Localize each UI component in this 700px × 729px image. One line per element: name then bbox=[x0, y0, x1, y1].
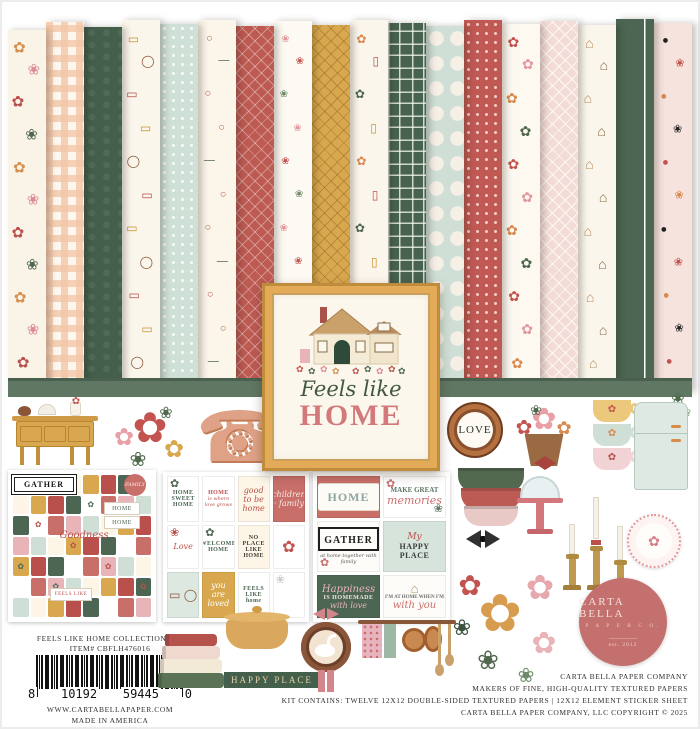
goodness-sticker: Goodness bbox=[56, 528, 112, 542]
paper-motif-icon: ● bbox=[661, 91, 668, 102]
paper-strip: ✿✿✿✿✿✿✿✿✿✿✿ bbox=[502, 24, 540, 392]
paper-motif-icon: ▭ bbox=[126, 222, 137, 234]
book-stack bbox=[156, 634, 226, 688]
paper-motif-icon: ❀ bbox=[281, 35, 289, 45]
paper-motif-icon: ❀ bbox=[673, 125, 682, 136]
paper-motif-icon: ✿ bbox=[13, 41, 26, 56]
journaling-card: ✿ bbox=[273, 525, 305, 568]
logo-subtitle: P A P E R C O. bbox=[585, 623, 660, 629]
paper-motif-icon: ❀ bbox=[674, 191, 683, 202]
paper-motif-icon: ✿ bbox=[521, 190, 533, 204]
journaling-card: ❀Love bbox=[167, 525, 199, 568]
book-icon bbox=[158, 673, 224, 688]
copyright-line: CARTA BELLA PAPER COMPANY, LLC COPYRIGHT… bbox=[461, 708, 688, 717]
gather-sticker: GATHER bbox=[14, 477, 74, 492]
paper-motif-icon: ❀ bbox=[675, 58, 684, 69]
svg-text:✿: ✿ bbox=[364, 365, 372, 375]
paper-motif-icon: ▯ bbox=[370, 122, 377, 134]
paper-motif-icon: ❀ bbox=[295, 190, 303, 200]
red-bow-icon bbox=[534, 456, 556, 470]
paper-motif-icon: ✿ bbox=[14, 290, 27, 305]
paper-motif-icon: ✿ bbox=[356, 155, 366, 167]
paper-motif-icon: ❀ bbox=[293, 124, 301, 134]
sticker-tile bbox=[13, 598, 29, 617]
journaling-cards-sheet-small: ✿HOME SWEET HOMEHOMEis where love growsg… bbox=[163, 472, 309, 622]
paper-strip bbox=[160, 24, 198, 392]
paper-strip bbox=[84, 27, 122, 392]
journaling-card: ▭ ◯ bbox=[167, 572, 199, 618]
paper-motif-icon: ▭ bbox=[128, 289, 139, 301]
swan-medallion bbox=[300, 608, 352, 692]
paper-motif-icon: ○ bbox=[218, 122, 225, 133]
sticker-tile bbox=[48, 598, 64, 617]
paper-motif-icon: ▭ bbox=[141, 323, 152, 335]
sticker-tile bbox=[31, 496, 47, 515]
paper-motif-icon: ❀ bbox=[296, 57, 304, 67]
black-bow bbox=[466, 530, 500, 548]
cottage-illustration: ✿✿ ✿✿ ✿✿ ✿✿ ✿ bbox=[290, 301, 412, 375]
book-icon bbox=[162, 646, 220, 659]
paper-motif-icon: ❀ bbox=[26, 258, 39, 273]
paper-motif-icon: ❀ bbox=[280, 90, 288, 100]
paper-motif-icon: ✿ bbox=[508, 157, 520, 171]
paper-strip: ●❀●❀●❀●❀●❀● bbox=[654, 23, 692, 392]
paper-motif-icon: ✿ bbox=[356, 33, 366, 45]
paper-motif-icon: ❀ bbox=[25, 127, 38, 142]
teacup-icon: ✿ bbox=[593, 400, 631, 422]
sticker-tile bbox=[136, 537, 152, 556]
paper-motif-icon: ○ bbox=[220, 323, 227, 334]
paper-motif-icon: ◯ bbox=[141, 55, 154, 67]
paper-motif-icon: ❀ bbox=[294, 257, 302, 267]
paper-motif-icon: ❀ bbox=[28, 62, 41, 77]
sticker-tile: ✿ bbox=[13, 557, 29, 576]
dutch-oven-pot bbox=[222, 612, 292, 649]
paper-motif-icon: ⌂ bbox=[584, 91, 592, 105]
paper-motif-icon: ⌂ bbox=[584, 224, 592, 238]
leaf-icon: ❀ bbox=[530, 403, 542, 417]
leaf-icon: ❀ bbox=[477, 647, 499, 673]
item-number: ITEM# CBFLH476016 bbox=[70, 644, 151, 653]
rose-icon: ✿ bbox=[114, 426, 134, 450]
sticker-tile: ✿ bbox=[83, 598, 99, 617]
paper-motif-icon: ✿ bbox=[12, 95, 25, 110]
paper-motif-icon: ▭ bbox=[141, 189, 152, 201]
sticker-tile bbox=[31, 537, 47, 556]
journaling-card: GATHER at home together with family ✿ bbox=[317, 521, 380, 573]
svg-text:✿: ✿ bbox=[398, 367, 406, 375]
sticker-tile bbox=[48, 496, 64, 515]
journaling-card: good to be home bbox=[238, 476, 270, 522]
paper-motif-icon: ◯ bbox=[127, 155, 140, 167]
logo-est: est. 2012 bbox=[609, 638, 638, 648]
paper-motif-icon: ✿ bbox=[355, 88, 365, 100]
feels-like-home-frame: ✿✿ ✿✿ ✿✿ ✿✿ ✿ Feels like HOME bbox=[262, 283, 440, 471]
rose-icon: ✿ bbox=[526, 571, 555, 605]
large-rose-bouquet: ✿ ✿ ✿ ✿ ❀ ❀ ❀ bbox=[448, 552, 574, 698]
bowl-icon bbox=[464, 506, 518, 526]
rose-icon: ✿ bbox=[648, 534, 660, 548]
paper-motif-icon: ✿ bbox=[520, 256, 532, 270]
feels-like-sticker: FEELS LIKE bbox=[50, 588, 92, 601]
pot-lid-icon bbox=[224, 612, 290, 622]
sticker-tile: ✿ bbox=[101, 557, 117, 576]
home-sticker: HOME bbox=[104, 502, 140, 515]
wooden-spoon-icon bbox=[448, 624, 451, 658]
paper-motif-icon: ✿ bbox=[506, 91, 518, 105]
journaling-card: children · family bbox=[273, 476, 305, 522]
website: WWW.CARTABELLAPAPER.COM bbox=[47, 705, 173, 714]
wooden-spoon-icon bbox=[438, 624, 441, 668]
paper-motif-icon: ❀ bbox=[674, 324, 683, 335]
paper-motif-icon: ▯ bbox=[372, 189, 379, 201]
paper-motif-icon: — bbox=[204, 156, 215, 167]
cake-dome-icon bbox=[38, 404, 56, 415]
svg-text:✿: ✿ bbox=[388, 365, 396, 375]
paper-strip bbox=[46, 22, 84, 392]
paper-motif-icon: ◯ bbox=[140, 256, 153, 268]
paper-motif-icon: ▭ bbox=[128, 33, 139, 45]
frame-script-text: Feels like bbox=[300, 377, 401, 401]
svg-text:✿: ✿ bbox=[376, 367, 384, 375]
small-card-grid: ✿HOME SWEET HOMEHOMEis where love growsg… bbox=[167, 476, 305, 618]
paper-motif-icon: — bbox=[218, 55, 229, 66]
book-icon bbox=[160, 659, 222, 673]
paper-motif-icon: ❀ bbox=[674, 257, 683, 268]
candlestick-icon bbox=[587, 497, 605, 590]
sticker-tile bbox=[66, 598, 82, 617]
paper-motif-icon: ⌂ bbox=[597, 124, 605, 138]
paper-motif-icon: — bbox=[217, 256, 228, 267]
sticker-tile bbox=[136, 598, 152, 617]
paper-motif-icon: — bbox=[208, 357, 219, 368]
paper-motif-icon: ⌂ bbox=[598, 257, 606, 271]
sticker-tile bbox=[31, 598, 47, 617]
svg-text:✿: ✿ bbox=[320, 365, 328, 375]
cake-stand bbox=[517, 476, 563, 534]
sticker-tile: ✿ bbox=[31, 516, 47, 535]
hanging-pan-rack bbox=[358, 612, 456, 702]
journaling-card: HOME bbox=[317, 476, 380, 518]
bowl-icon: ✿ bbox=[627, 514, 681, 568]
retro-refrigerator: ❀ ❀ bbox=[634, 392, 690, 500]
paper-motif-icon: ○ bbox=[220, 189, 227, 200]
paper-motif-icon: ❀ bbox=[27, 323, 40, 338]
paper-motif-icon: ⌂ bbox=[600, 58, 608, 72]
sticker-tile bbox=[66, 557, 82, 576]
paper-strip bbox=[464, 20, 502, 392]
paper-strip bbox=[540, 21, 578, 392]
paper-motif-icon: ❀ bbox=[280, 224, 288, 234]
flower-icon: ✿ bbox=[72, 397, 80, 407]
sticker-tile: ✿ bbox=[136, 578, 152, 597]
journaling-card: HOMEis where love grows bbox=[202, 476, 234, 522]
paper-motif-icon: ✿ bbox=[17, 356, 30, 371]
paper-motif-icon: ▯ bbox=[371, 256, 378, 268]
paper-motif-icon: ▭ bbox=[126, 88, 137, 100]
love-plate-frame: LOVE bbox=[447, 402, 503, 458]
made-in: MADE IN AMERICA bbox=[72, 716, 149, 725]
paper-motif-icon: ❀ bbox=[27, 193, 40, 208]
company-line: CARTA BELLA PAPER COMPANY bbox=[560, 672, 688, 681]
hanging-flower-basket: ✿ ✿ ✿ ❀ bbox=[508, 398, 580, 476]
paper-motif-icon: ⌂ bbox=[589, 356, 597, 370]
paper-motif-icon: ⌂ bbox=[586, 290, 594, 304]
stacked-teacups: ✿ ✿ ✿ bbox=[584, 398, 640, 470]
bow-icon bbox=[466, 530, 500, 548]
barcode-digits: 8 10192 59445 0 bbox=[26, 687, 194, 701]
sticker-tile bbox=[83, 475, 99, 494]
sticker-tile bbox=[13, 537, 29, 556]
teacup-icon: ✿ bbox=[593, 448, 631, 470]
paper-strip: ▭◯▭▭◯▭▭◯▭▭◯ bbox=[122, 20, 160, 392]
frame-title-text: HOME bbox=[300, 399, 403, 433]
paper-motif-icon: ▯ bbox=[373, 55, 380, 67]
book-icon bbox=[165, 634, 217, 646]
journaling-cards-sheet-large: HOME✿❀ MAKE GREAT memoriesGATHER at home… bbox=[313, 472, 450, 622]
paper-strip: ⌂⌂⌂⌂⌂⌂⌂⌂⌂⌂⌂ bbox=[578, 25, 616, 392]
product-image: ✿❀✿❀✿❀✿❀✿❀✿▭◯▭▭◯▭▭◯▭▭◯○—○○—○○—○○—❀❀❀❀❀❀❀… bbox=[0, 0, 700, 729]
paper-motif-icon: ✿ bbox=[506, 223, 518, 237]
paper-motif-icon: ⌂ bbox=[585, 36, 593, 50]
svg-text:✿: ✿ bbox=[296, 365, 304, 375]
paper-motif-icon: ✿ bbox=[508, 289, 520, 303]
rose-icon: ✿ bbox=[164, 438, 184, 462]
rose-icon: ✿ bbox=[458, 572, 481, 600]
paper-motif-icon: ✿ bbox=[511, 356, 523, 370]
paper-motif-icon: ✿ bbox=[522, 57, 534, 71]
svg-text:✿: ✿ bbox=[332, 367, 340, 375]
journaling-card: NO PLACE LIKE HOME bbox=[238, 525, 270, 568]
rose-icon: ✿ bbox=[478, 588, 522, 640]
fridge-icon bbox=[634, 402, 688, 490]
paper-motif-icon: ▭ bbox=[140, 122, 151, 134]
sticker-tile bbox=[83, 557, 99, 576]
paper-motif-icon: ● bbox=[663, 291, 670, 302]
paper-motif-icon: ○ bbox=[205, 223, 212, 234]
journaling-card: My HAPPY PLACE bbox=[383, 521, 446, 573]
svg-text:✿: ✿ bbox=[308, 367, 316, 375]
paper-motif-icon: ● bbox=[662, 36, 669, 47]
paper-motif-icon: ⌂ bbox=[599, 190, 607, 204]
journaling-card: ✿HOME SWEET HOME bbox=[167, 476, 199, 522]
teacup-icon: ✿ bbox=[593, 424, 631, 446]
sticker-tile bbox=[118, 598, 134, 617]
paper-motif-icon: ✿ bbox=[12, 225, 25, 240]
sticker-tile bbox=[101, 578, 117, 597]
paper-motif-icon: ✿ bbox=[520, 124, 532, 138]
sticker-tile bbox=[118, 578, 134, 597]
paper-motif-icon: ● bbox=[662, 158, 669, 169]
paper-motif-icon: ✿ bbox=[13, 160, 26, 175]
journaling-card: ✿❀ MAKE GREAT memories bbox=[383, 476, 446, 518]
large-card-grid: HOME✿❀ MAKE GREAT memoriesGATHER at home… bbox=[317, 476, 446, 618]
paper-motif-icon: ✿ bbox=[508, 35, 520, 49]
sticker-tile bbox=[13, 496, 29, 515]
paper-motif-icon: ⌂ bbox=[599, 323, 607, 337]
sticker-tile bbox=[118, 557, 134, 576]
sticker-tile bbox=[13, 578, 29, 597]
paper-strip: ✿❀✿❀✿❀✿❀✿❀✿ bbox=[8, 30, 46, 392]
paper-motif-icon: ● bbox=[661, 224, 668, 235]
element-sticker-sheet: ✿✿✿✿✿✿✿✿✿✿✿ GATHER FAMILY HOME HOME Good… bbox=[8, 470, 156, 622]
sticker-tile bbox=[48, 557, 64, 576]
sticker-tile bbox=[31, 578, 47, 597]
paper-strip: ○—○○—○○—○○— bbox=[198, 20, 236, 392]
teapot-icon bbox=[18, 406, 31, 416]
leaf-icon: ❀ bbox=[518, 666, 535, 686]
rose-icon: ✿ bbox=[531, 629, 556, 659]
pink-bow-icon bbox=[313, 608, 339, 621]
sticker-tile bbox=[31, 557, 47, 576]
paper-motif-icon: ❀ bbox=[281, 157, 289, 167]
ribbon-tails bbox=[300, 670, 352, 692]
paper-motif-icon: ⌂ bbox=[585, 157, 593, 171]
logo-name: CARTA BELLA bbox=[579, 596, 667, 620]
sticker-tile bbox=[66, 496, 82, 515]
paper-motif-icon: ✿ bbox=[355, 222, 365, 234]
paper-motif-icon: ✿ bbox=[521, 322, 533, 336]
love-label: LOVE bbox=[457, 412, 493, 448]
sticker-tile: ✿ bbox=[83, 496, 99, 515]
sticker-tile bbox=[101, 598, 117, 617]
sticker-tile bbox=[136, 557, 152, 576]
sticker-tile bbox=[118, 537, 134, 556]
svg-text:✿: ✿ bbox=[352, 367, 360, 375]
carta-bella-logo: CARTA BELLA P A P E R C O. est. 2012 bbox=[579, 578, 667, 666]
copper-pan-icon bbox=[402, 628, 426, 652]
leaf-icon: ❀ bbox=[159, 406, 172, 422]
frame-artwork: ✿✿ ✿✿ ✿✿ ✿✿ ✿ Feels like HOME bbox=[272, 293, 430, 461]
medallion-frame bbox=[301, 622, 351, 672]
sticker-tile bbox=[13, 516, 29, 535]
floral-towel-icon bbox=[362, 624, 382, 658]
leaf-icon: ❀ bbox=[130, 450, 147, 470]
glass-dome-icon bbox=[520, 476, 560, 498]
towel-icon bbox=[384, 624, 396, 658]
sideboard-illustration: ✿ bbox=[12, 400, 102, 466]
love-plate: LOVE bbox=[447, 402, 503, 458]
journaling-card: ✿WELCOME HOME bbox=[202, 525, 234, 568]
paper-motif-icon: ○ bbox=[207, 290, 214, 301]
floral-rim-bowl: ✿ bbox=[627, 514, 681, 568]
paper-strip bbox=[616, 19, 654, 392]
paper-motif-icon: ● bbox=[666, 357, 673, 368]
pot-icon bbox=[226, 619, 288, 649]
paper-motif-icon: ◯ bbox=[130, 356, 143, 368]
rose-bouquet-small: ✿ ✿ ✿ ❀ ❀ bbox=[108, 398, 192, 478]
paper-motif-icon: ○ bbox=[205, 89, 212, 100]
paper-motif-icon: ○ bbox=[206, 33, 213, 44]
